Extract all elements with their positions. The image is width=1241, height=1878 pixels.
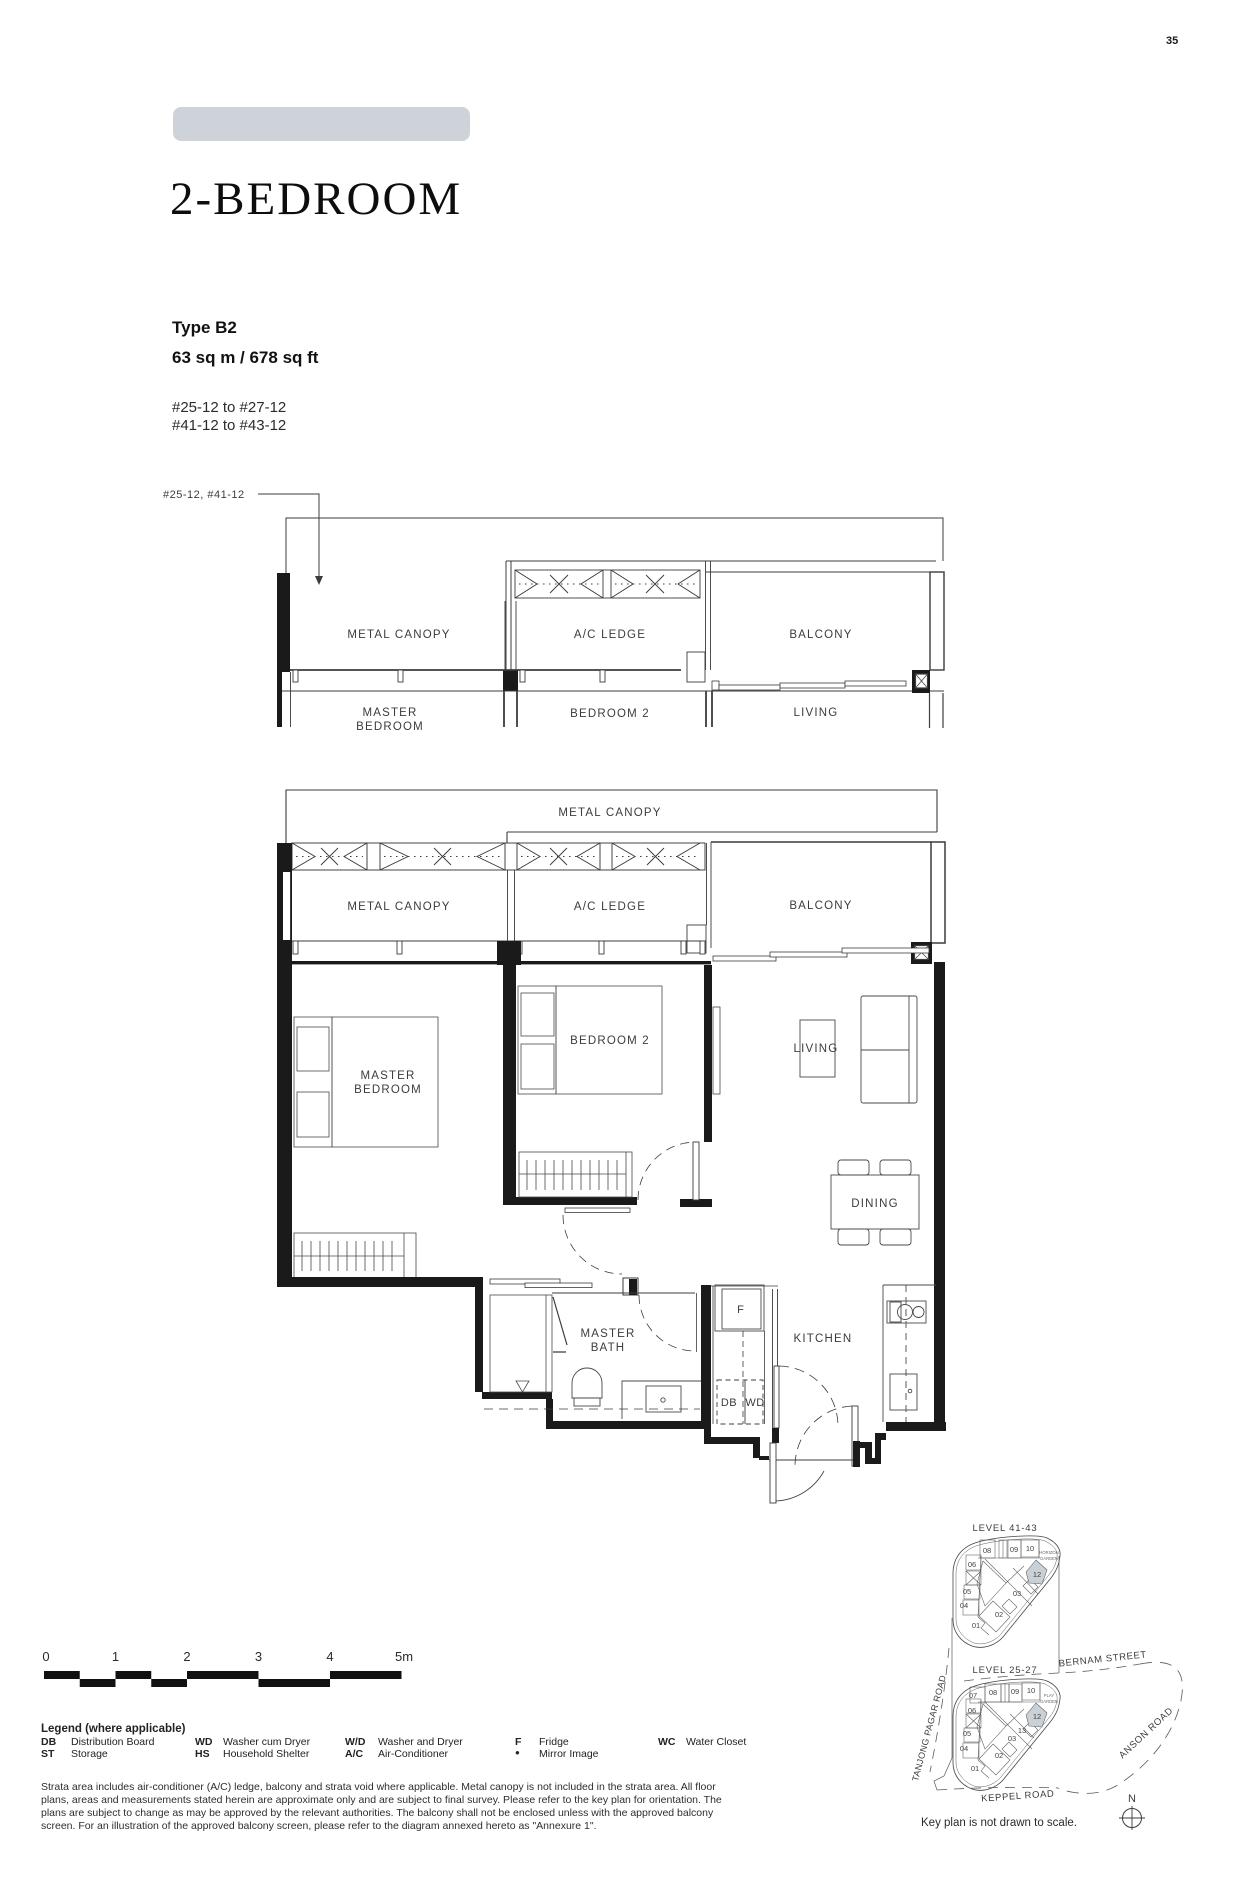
svg-text:screen. For an illustration of: screen. For an illustration of the appro… [41, 1820, 597, 1832]
svg-text:Fridge: Fridge [539, 1736, 569, 1748]
svg-text:10: 10 [1026, 1544, 1034, 1553]
svg-text:BEDROOM: BEDROOM [356, 721, 424, 733]
svg-text:04: 04 [960, 1744, 968, 1753]
svg-text:09: 09 [1011, 1687, 1019, 1696]
svg-text:05: 05 [963, 1587, 971, 1596]
svg-text:METAL CANOPY: METAL CANOPY [347, 629, 450, 641]
svg-text:Mirror Image: Mirror Image [539, 1748, 599, 1760]
svg-text:MASTER: MASTER [360, 1070, 415, 1082]
svg-text:0: 0 [42, 1649, 49, 1664]
svg-text:F: F [515, 1736, 522, 1748]
svg-text:06: 06 [968, 1560, 976, 1569]
svg-text:BEDROOM: BEDROOM [354, 1084, 422, 1096]
svg-text:Distribution Board: Distribution Board [71, 1736, 155, 1748]
svg-text:03: 03 [1008, 1734, 1016, 1743]
svg-text:BEDROOM 2: BEDROOM 2 [570, 708, 650, 720]
svg-text:LEVEL 41-43: LEVEL 41-43 [973, 1523, 1038, 1534]
svg-text:DB: DB [721, 1397, 737, 1409]
svg-text:LIVING: LIVING [794, 707, 839, 719]
svg-text:12: 12 [1033, 1712, 1041, 1721]
svg-text:Strata area includes air-condi: Strata area includes air-conditioner (A/… [41, 1781, 716, 1793]
svg-text:02: 02 [995, 1610, 1003, 1619]
svg-text:12: 12 [1033, 1570, 1041, 1579]
svg-text:#25-12, #41-12: #25-12, #41-12 [163, 489, 245, 501]
svg-text:Water Closet: Water Closet [686, 1736, 746, 1748]
svg-text:BATH: BATH [591, 1342, 626, 1354]
svg-text:02: 02 [995, 1751, 1003, 1760]
svg-text:01: 01 [972, 1621, 980, 1630]
svg-text:DB: DB [41, 1736, 57, 1748]
svg-text:07: 07 [969, 1691, 977, 1700]
svg-text:09: 09 [1010, 1545, 1018, 1554]
svg-text:5m: 5m [395, 1649, 413, 1664]
svg-text:1: 1 [112, 1649, 119, 1664]
svg-text:WC: WC [658, 1736, 676, 1748]
svg-text:04: 04 [960, 1601, 968, 1610]
svg-text:ST: ST [41, 1748, 55, 1760]
svg-text:KITCHEN: KITCHEN [794, 1333, 853, 1345]
svg-text:06: 06 [968, 1706, 976, 1715]
svg-text:A/C: A/C [345, 1748, 364, 1760]
svg-text:Washer cum Dryer: Washer cum Dryer [223, 1736, 311, 1748]
svg-text:A/C LEDGE: A/C LEDGE [574, 901, 646, 913]
svg-text:Washer and Dryer: Washer and Dryer [378, 1736, 463, 1748]
svg-text:08: 08 [983, 1546, 991, 1555]
svg-text:HS: HS [195, 1748, 210, 1760]
svg-text:BALCONY: BALCONY [789, 629, 852, 641]
svg-text:Key plan is not drawn to scale: Key plan is not drawn to scale. [921, 1817, 1077, 1829]
svg-text:GARDEN: GARDEN [1040, 1556, 1058, 1561]
svg-text:MASTER: MASTER [362, 707, 417, 719]
svg-text:BEDROOM 2: BEDROOM 2 [570, 1035, 650, 1047]
svg-text:plans are subject to change as: plans are subject to change as may be ap… [41, 1807, 714, 1819]
svg-text:PLAY: PLAY [1044, 1693, 1055, 1698]
svg-text:WD: WD [745, 1397, 764, 1409]
svg-text:05: 05 [963, 1729, 971, 1738]
svg-text:MASTER: MASTER [580, 1328, 635, 1340]
svg-text:DINING: DINING [851, 1198, 898, 1210]
svg-text:plans, areas and measurements: plans, areas and measurements stated her… [41, 1794, 722, 1806]
svg-text:METAL CANOPY: METAL CANOPY [558, 807, 661, 819]
svg-text:HORIZON: HORIZON [1039, 1550, 1058, 1555]
svg-text:2: 2 [183, 1649, 190, 1664]
svg-text:13: 13 [1018, 1726, 1026, 1735]
svg-text:3: 3 [255, 1649, 262, 1664]
svg-text:LEVEL 25-27: LEVEL 25-27 [973, 1665, 1038, 1676]
svg-text:ANSON ROAD: ANSON ROAD [1117, 1705, 1176, 1761]
svg-text:KEPPEL ROAD: KEPPEL ROAD [981, 1788, 1055, 1804]
svg-text:Storage: Storage [71, 1748, 108, 1760]
svg-text:METAL CANOPY: METAL CANOPY [347, 901, 450, 913]
svg-text:03: 03 [1013, 1589, 1021, 1598]
svg-text:A/C LEDGE: A/C LEDGE [574, 629, 646, 641]
svg-text:4: 4 [326, 1649, 333, 1664]
svg-text:GARDEN: GARDEN [1040, 1699, 1058, 1704]
svg-text:N: N [1128, 1793, 1136, 1805]
svg-text:Air-Conditioner: Air-Conditioner [378, 1748, 449, 1760]
svg-text:01: 01 [971, 1764, 979, 1773]
svg-text:W/D: W/D [345, 1736, 366, 1748]
svg-text:BERNAM STREET: BERNAM STREET [1058, 1649, 1147, 1669]
svg-text:08: 08 [989, 1688, 997, 1697]
svg-text:LIVING: LIVING [794, 1043, 839, 1055]
svg-text:F: F [737, 1304, 745, 1316]
svg-text:BALCONY: BALCONY [789, 900, 852, 912]
svg-text:Household Shelter: Household Shelter [223, 1748, 310, 1760]
svg-text:TANJONG PAGAR ROAD: TANJONG PAGAR ROAD [910, 1674, 948, 1783]
svg-text:Legend (where applicable): Legend (where applicable) [41, 1723, 186, 1735]
svg-text:●: ● [515, 1748, 520, 1757]
svg-text:10: 10 [1027, 1686, 1035, 1695]
svg-text:WD: WD [195, 1736, 213, 1748]
